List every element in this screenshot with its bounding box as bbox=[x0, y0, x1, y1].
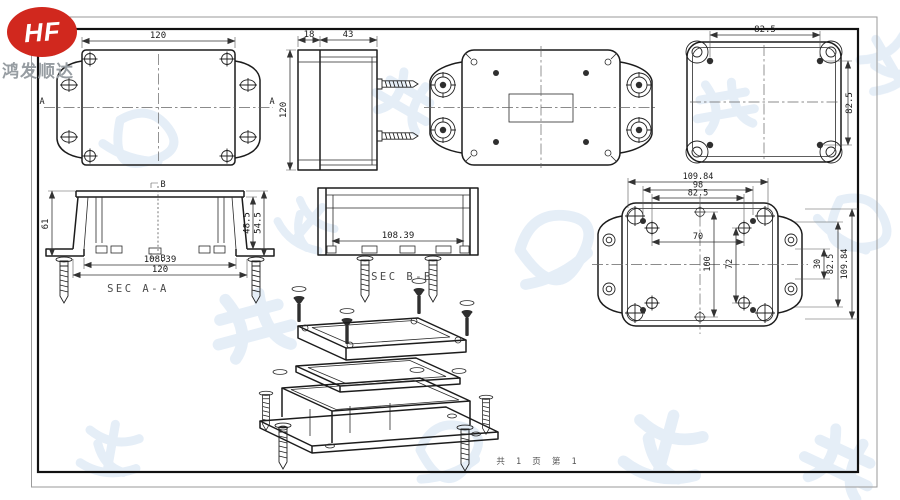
dim-base-h2: 72 bbox=[725, 259, 735, 269]
section-bb-label: SEC B-B bbox=[371, 271, 433, 283]
dim-aa-w2: 120 bbox=[152, 265, 168, 275]
dim-base-r2: 82.5 bbox=[826, 254, 836, 274]
view-base-inner: 109.84 98 82.5 70 100 72 30 82.5 bbox=[592, 172, 858, 334]
page-info: 共 1 页 第 1 bbox=[496, 456, 579, 467]
section-bb: 108.39 SEC B-B bbox=[318, 188, 478, 302]
company-logo: HF bbox=[7, 7, 77, 57]
dim-side-height: 120 bbox=[279, 102, 289, 118]
dim-aa-d2: 54.5 bbox=[254, 212, 264, 234]
section-marker-a-right: A bbox=[269, 97, 274, 107]
dim-base-boss: 70 bbox=[693, 232, 703, 242]
dim-aa-w1: 108.39 bbox=[144, 255, 177, 265]
view-side: 18 43 120 bbox=[279, 30, 418, 170]
view-back bbox=[424, 46, 658, 168]
drawing-sheet: HF 鸿发顺达 bbox=[0, 0, 900, 500]
section-marker-b-top: B bbox=[160, 180, 165, 190]
view-lid-inner: 82.5 82.5 bbox=[686, 25, 855, 163]
section-marker-a-left: A bbox=[39, 97, 44, 107]
dim-base-w3: 82.5 bbox=[688, 189, 708, 199]
section-aa: B B 61 48.5 54.5 108.39 120 SEC A-A bbox=[41, 180, 274, 303]
dim-lid-height: 82.5 bbox=[845, 92, 855, 114]
dim-aa-d1: 48.5 bbox=[243, 212, 253, 234]
dim-bb-w1: 108.39 bbox=[382, 231, 415, 241]
logo-text: HF bbox=[23, 15, 62, 48]
view-top: 120 A A bbox=[39, 31, 274, 165]
dim-side-body: 43 bbox=[343, 30, 354, 40]
dim-lid-width: 82.5 bbox=[754, 25, 776, 35]
dim-base-h1: 100 bbox=[703, 256, 713, 271]
company-name: 鸿发顺达 bbox=[2, 57, 88, 82]
cad-drawing: 120 A A 18 43 120 bbox=[0, 0, 900, 500]
dim-base-r3: 109.84 bbox=[840, 249, 850, 280]
dim-aa-height: 61 bbox=[41, 219, 51, 230]
dim-top-width: 120 bbox=[150, 31, 166, 41]
dim-side-lid: 18 bbox=[304, 30, 315, 40]
dim-base-r1: 30 bbox=[813, 259, 823, 269]
view-exploded bbox=[259, 279, 498, 471]
section-aa-label: SEC A-A bbox=[107, 283, 169, 295]
